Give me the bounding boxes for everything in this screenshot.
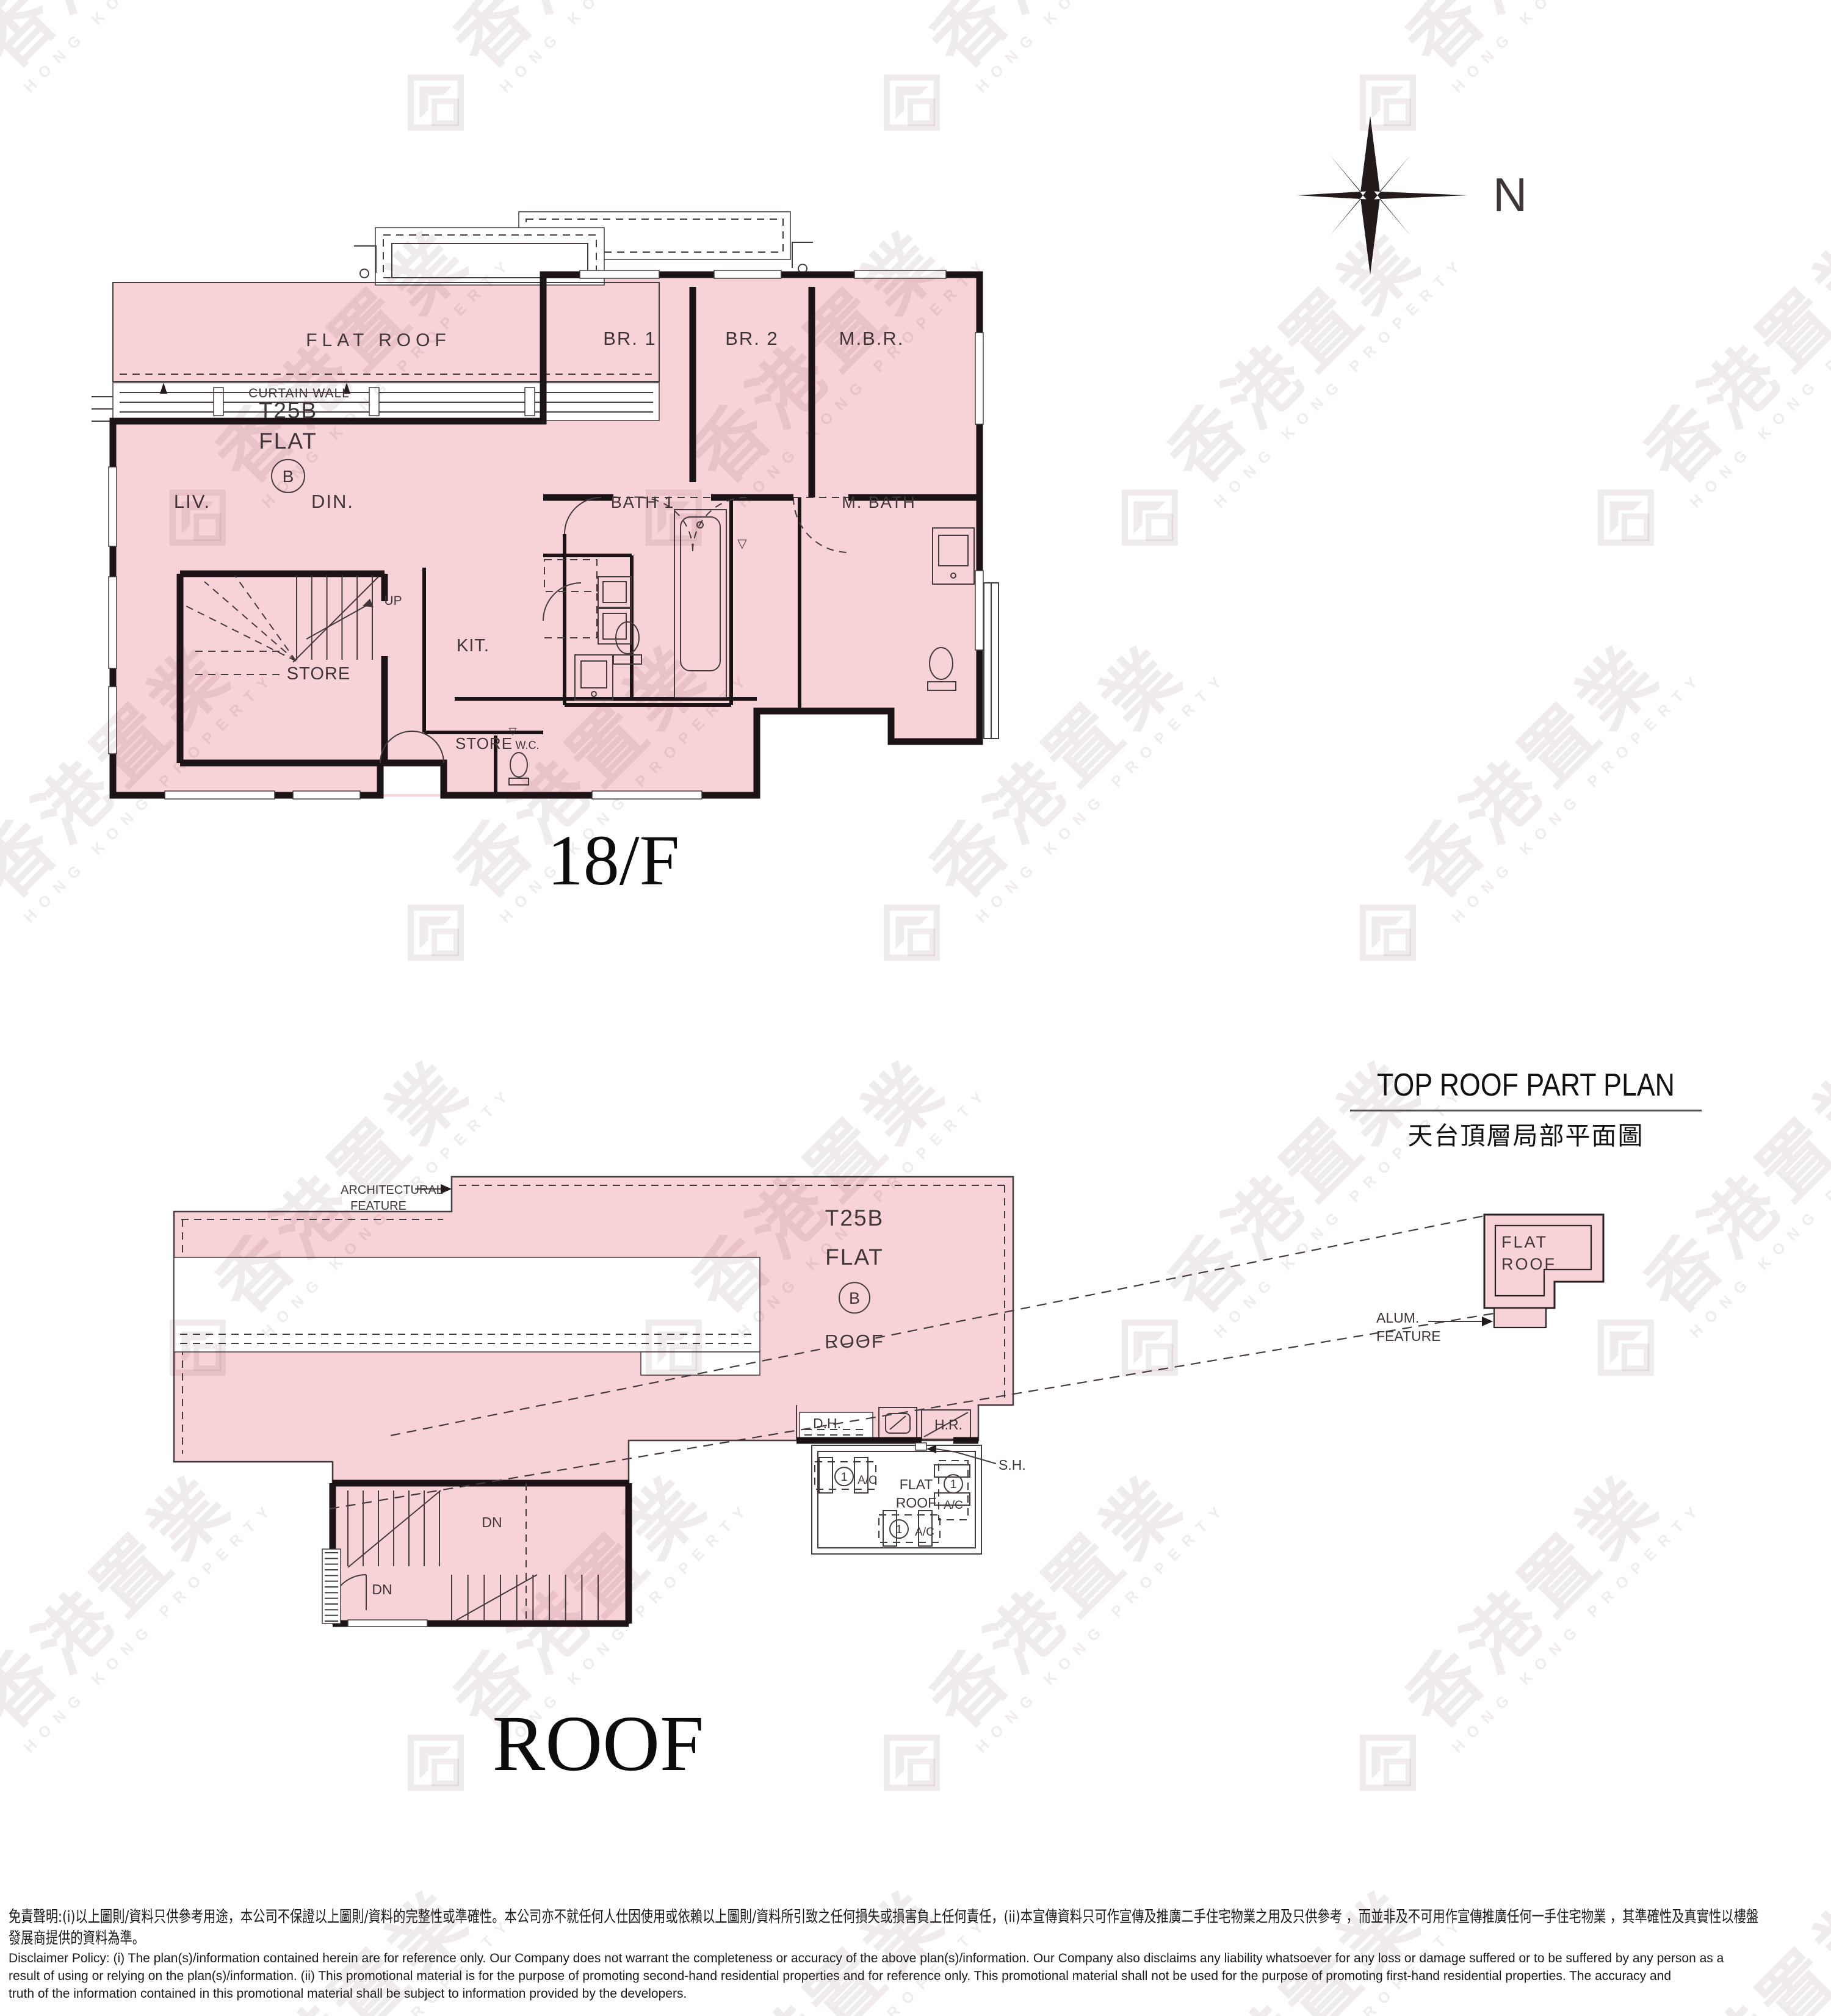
watermark-cjk: 香港置業 <box>0 0 264 81</box>
room-label: BR. 2 <box>725 328 779 349</box>
watermark-en: HONG KONG PROPERTY <box>1450 0 1707 96</box>
room-label: STORE <box>287 664 350 684</box>
room-label: FLAT <box>259 428 317 453</box>
compass-rose-icon: N <box>1251 104 1526 287</box>
watermark-cjk: 香港置業 <box>442 0 739 81</box>
room-label: A/C <box>915 1526 934 1539</box>
hkp-logo-icon <box>0 45 16 159</box>
room-label: FEATURE <box>350 1199 406 1213</box>
room-label: A/C <box>944 1499 963 1512</box>
hkp-logo-icon <box>0 875 16 989</box>
heading-rule <box>1350 1110 1702 1111</box>
room-label: FLAT <box>1501 1233 1548 1251</box>
watermark-cjk: 香港置業 <box>1394 1443 1691 1741</box>
room-label: DN <box>372 1581 392 1597</box>
room-label: H.R. <box>934 1417 962 1433</box>
floor-title-roof: ROOF <box>439 1698 757 1790</box>
part-plan-heading: TOP ROOF PART PLAN 天台頂層局部平面圖 <box>1343 1067 1709 1152</box>
room-label: ▽ <box>509 726 517 737</box>
watermark: 香港置業HONG KONG PROPERTY <box>1564 198 1831 579</box>
watermark-en: HONG KONG PROPERTY <box>1688 1083 1831 1341</box>
roof-fill <box>174 1177 1013 1624</box>
room-label: 1 <box>950 1478 957 1491</box>
watermark-cjk: 香港置業 <box>1632 198 1831 496</box>
part-plan-heading-en: TOP ROOF PART PLAN <box>1368 1067 1683 1104</box>
floor-title-18f: 18/F <box>482 819 745 902</box>
watermark-en: HONG KONG PROPERTY <box>1212 253 1469 511</box>
room-label: ROOF <box>825 1331 884 1352</box>
watermark: 香港置業HONG KONG PROPERTY <box>0 0 279 164</box>
room-label: BR. 1 <box>603 328 657 349</box>
watermark: 香港置業HONG KONG PROPERTY <box>1802 0 1831 164</box>
watermark-en: HONG KONG PROPERTY <box>497 0 755 96</box>
floor-plan-roof-drawing: ARCHITECTURALFEATURET25BFLATBROOFD.H.H.R… <box>165 1154 1141 1642</box>
hkp-logo-icon <box>1807 1705 1831 1819</box>
watermark: 香港置業HONG KONG PROPERTY <box>1326 1443 1707 1824</box>
room-label: FLAT ROOF <box>306 330 451 350</box>
room-label: ROOF <box>896 1495 936 1511</box>
room-label: STORE <box>455 734 513 753</box>
hkp-logo-icon <box>378 875 493 989</box>
room-label: B <box>849 1289 860 1307</box>
room-label: DIN. <box>311 491 354 512</box>
watermark-cjk: 香港置業 <box>1394 0 1691 81</box>
room-label: LIV. <box>174 491 211 512</box>
watermark-en: HONG KONG PROPERTY <box>973 668 1231 926</box>
disclaimer-zh-line2: 發展商提供的資料為準。 <box>9 1931 1425 1946</box>
watermark: 香港置業HONG KONG PROPERTY <box>1802 1443 1831 1824</box>
room-label: ROOF <box>1501 1255 1556 1273</box>
disclaimer-en-line1: Disclaimer Policy: (i) The plan(s)/infor… <box>9 1952 1824 1965</box>
room-label: KIT. <box>457 636 489 656</box>
hkp-logo-icon <box>1331 875 1445 989</box>
hkp-logo-icon <box>854 875 969 989</box>
room-label: M.B.R. <box>839 328 905 349</box>
room-label: T25B <box>259 398 317 423</box>
room-label: A/C <box>858 1474 877 1487</box>
top-roof-part-plan-drawing: FLATROOFALUM.FEATURE <box>1343 1172 1648 1355</box>
room-label: UP <box>384 594 402 608</box>
room-label: DN <box>482 1514 502 1530</box>
hkp-logo-icon <box>1569 460 1683 574</box>
compass-star <box>1297 116 1468 275</box>
disclaimer-en-line3: truth of the information contained in th… <box>9 1987 1824 2000</box>
hkp-logo-icon <box>854 45 969 159</box>
watermark-cjk: 香港置業 <box>1394 613 1691 911</box>
room-label: D.H. <box>813 1415 841 1431</box>
disclaimer: 免責聲明:(i)以上圖則/資料只供參考用途，本公司不保證以上圖則/資料的完整性或… <box>9 1909 1824 2005</box>
watermark-en: HONG KONG PROPERTY <box>973 0 1231 96</box>
compass-north-label: N <box>1493 168 1526 222</box>
room-label: M. BATH <box>842 493 916 511</box>
disclaimer-en-line2: result of using or relying on the plan(s… <box>9 1970 1824 1982</box>
watermark-en: HONG KONG PROPERTY <box>1688 253 1831 511</box>
watermark-cjk: 香港置業 <box>918 0 1215 81</box>
room-label: 1 <box>896 1523 903 1536</box>
watermark-en: HONG KONG PROPERTY <box>1450 1498 1707 1756</box>
hkp-logo-icon <box>1331 1705 1445 1819</box>
floor-plan-18f-drawing: FLAT ROOFCURTAIN WALLT25BFLATBLIV.DIN.BR… <box>92 211 1007 833</box>
watermark-en: HONG KONG PROPERTY <box>1450 668 1707 926</box>
room-label: ALUM. <box>1376 1310 1419 1326</box>
hkp-logo-icon <box>1092 460 1207 574</box>
watermark: 香港置業HONG KONG PROPERTY <box>1326 613 1707 994</box>
floor-plan-sheet: 香港置業HONG KONG PROPERTY香港置業HONG KONG PROP… <box>0 0 1831 2016</box>
hkp-logo-icon <box>378 45 493 159</box>
hkp-logo-icon <box>1807 45 1831 159</box>
hkp-logo-icon <box>854 1705 969 1819</box>
part-plan-heading-zh: 天台頂層局部平面圖 <box>1343 1115 1709 1152</box>
hkp-logo-icon <box>0 1705 16 1819</box>
room-label: FEATURE <box>1376 1328 1441 1344</box>
room-label: FLAT <box>900 1476 933 1492</box>
room-label: B <box>283 467 294 486</box>
watermark-en: HONG KONG PROPERTY <box>21 0 279 96</box>
hkp-logo-icon <box>1807 875 1831 989</box>
room-label: ▽ <box>737 537 747 551</box>
room-label: ARCHITECTURAL <box>341 1183 443 1197</box>
room-label: BATH 1 <box>611 493 675 511</box>
room-label: 1 <box>841 1471 848 1484</box>
watermark: 香港置業HONG KONG PROPERTY <box>850 0 1231 164</box>
watermark: 香港置業HONG KONG PROPERTY <box>1802 613 1831 994</box>
disclaimer-zh-line1: 免責聲明:(i)以上圖則/資料只供參考用途，本公司不保證以上圖則/資料的完整性或… <box>9 1909 1425 1925</box>
room-label: S.H. <box>999 1457 1026 1473</box>
room-label: T25B <box>825 1205 884 1230</box>
room-label: FLAT <box>825 1245 884 1270</box>
room-label: W.C. <box>516 739 540 751</box>
watermark: 香港置業HONG KONG PROPERTY <box>374 0 755 164</box>
